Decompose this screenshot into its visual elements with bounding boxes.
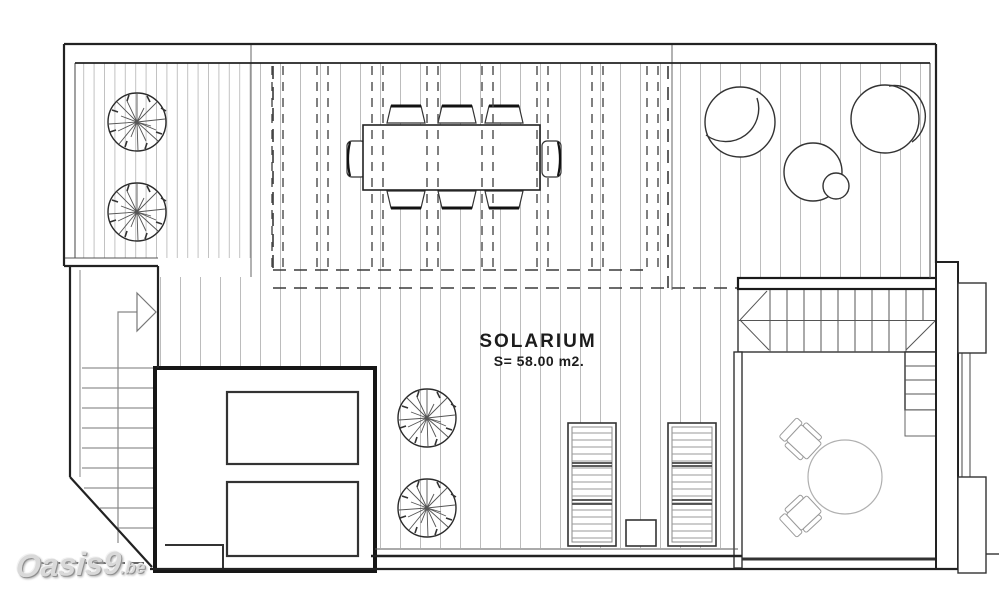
deck-left-section xyxy=(75,63,251,258)
sun-lounger xyxy=(568,423,616,546)
stair-wall xyxy=(738,278,937,289)
dining-chair xyxy=(387,191,425,208)
round-table xyxy=(808,440,882,514)
dining-chair xyxy=(485,106,523,123)
right-staircase xyxy=(738,278,937,436)
room-label: SOLARIUM xyxy=(479,331,596,352)
bush-icon xyxy=(823,173,849,199)
deck-mid-strip xyxy=(158,277,738,368)
sun-lounger xyxy=(668,423,716,546)
dining-chair xyxy=(438,106,476,123)
stair-direction-arrow-icon xyxy=(137,293,156,331)
side-table xyxy=(626,520,656,546)
stair-flight-down xyxy=(905,352,937,410)
exterior-block xyxy=(958,477,986,573)
floorplan-canvas: SOLARIUM S= 58.00 m2. xyxy=(0,0,1000,600)
room-wall xyxy=(734,352,742,568)
stair-landing xyxy=(905,410,937,436)
skylight-panel xyxy=(227,482,358,556)
watermark: Oasis9.be xyxy=(15,544,148,585)
dining-chair xyxy=(387,106,425,123)
dining-table xyxy=(363,125,540,190)
watermark-suffix: .be xyxy=(120,558,146,578)
bush-icon xyxy=(851,85,919,153)
watermark-brand: Oasis9 xyxy=(15,545,123,585)
bush-icon xyxy=(705,87,775,157)
storage-room xyxy=(155,368,375,571)
exterior-block xyxy=(958,283,986,353)
right-wall-band xyxy=(936,262,999,573)
dining-chair xyxy=(485,191,523,208)
skylight-panel xyxy=(227,392,358,464)
room-area-label: S= 58.00 m2. xyxy=(494,353,584,369)
dining-chair xyxy=(438,191,476,208)
outer-left xyxy=(64,44,70,477)
